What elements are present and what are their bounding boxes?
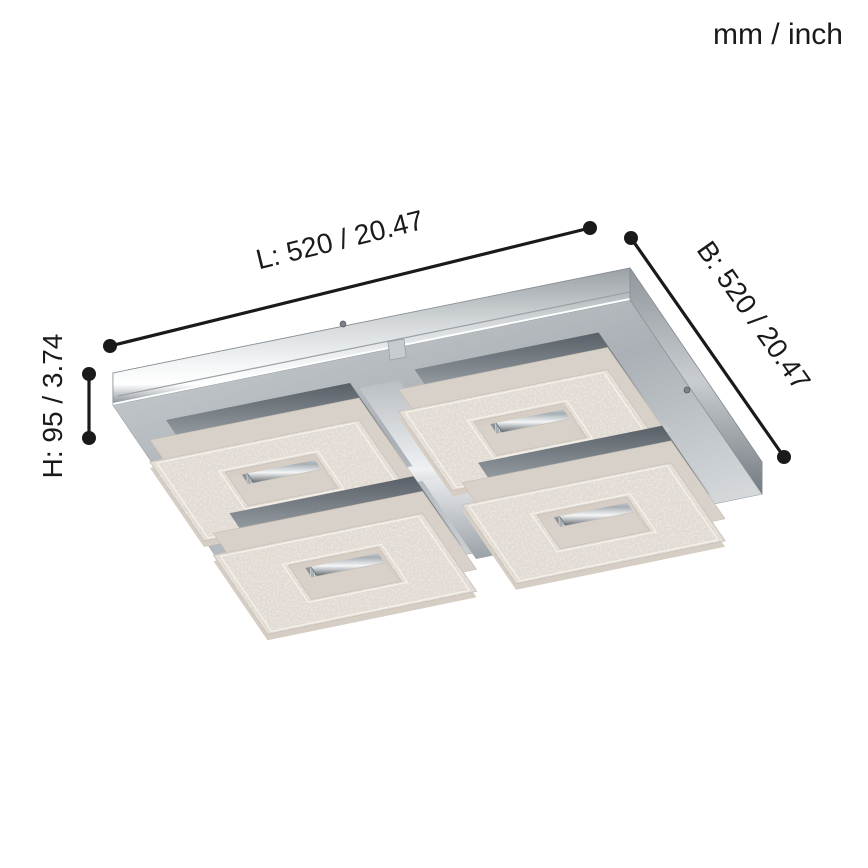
dimension-endpoint-dot [583,221,597,235]
unit-legend: mm / inch [713,18,843,51]
dimension-endpoint-dot [777,450,791,464]
mounting-bracket [388,339,406,360]
diagram-svg: L: 520 / 20.47 B: 520 / 20.47 H: 95 / 3.… [0,0,868,868]
dimension-endpoint-dot [624,231,638,245]
dimension-line-height [82,367,96,445]
dimension-diagram: L: 520 / 20.47 B: 520 / 20.47 H: 95 / 3.… [0,0,868,868]
dimension-label-height: H: 95 / 3.74 [37,334,68,479]
dimension-endpoint-dot [103,339,117,353]
dimension-endpoint-dot [82,367,96,381]
dimension-endpoint-dot [82,431,96,445]
screw [340,321,346,327]
dimension-label-length: L: 520 / 20.47 [253,204,427,275]
dimension-label-width: B: 520 / 20.47 [691,235,817,395]
ceiling-light-illustration [113,268,762,640]
screw [684,387,690,393]
